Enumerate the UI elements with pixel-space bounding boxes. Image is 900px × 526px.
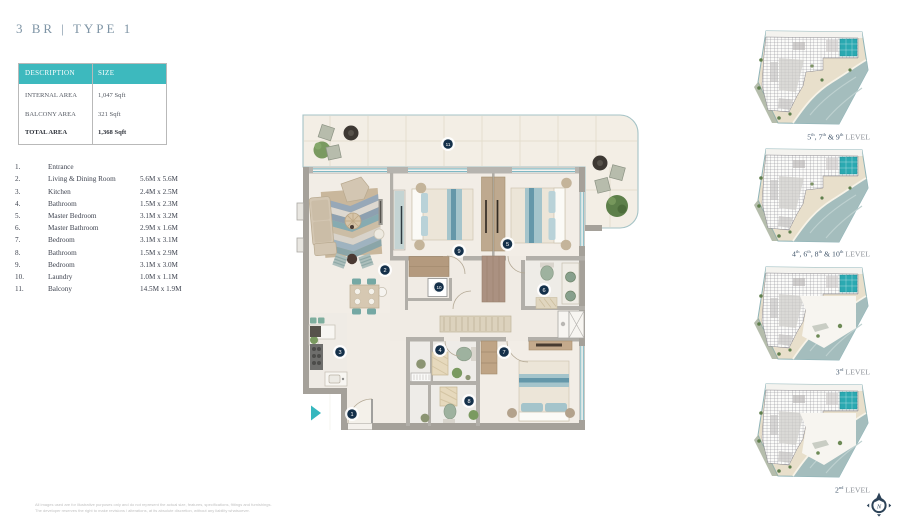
svg-text:1: 1 [350, 412, 353, 418]
svg-text:7: 7 [502, 350, 505, 356]
svg-text:8: 8 [467, 399, 470, 405]
svg-text:N: N [876, 504, 882, 511]
svg-text:3: 3 [338, 350, 341, 356]
svg-text:5: 5 [506, 242, 509, 248]
svg-text:4: 4 [438, 348, 441, 354]
svg-text:11: 11 [446, 142, 451, 147]
svg-text:9: 9 [457, 249, 460, 255]
svg-text:6: 6 [542, 288, 545, 294]
svg-text:10: 10 [436, 285, 442, 290]
svg-text:2: 2 [383, 268, 386, 274]
